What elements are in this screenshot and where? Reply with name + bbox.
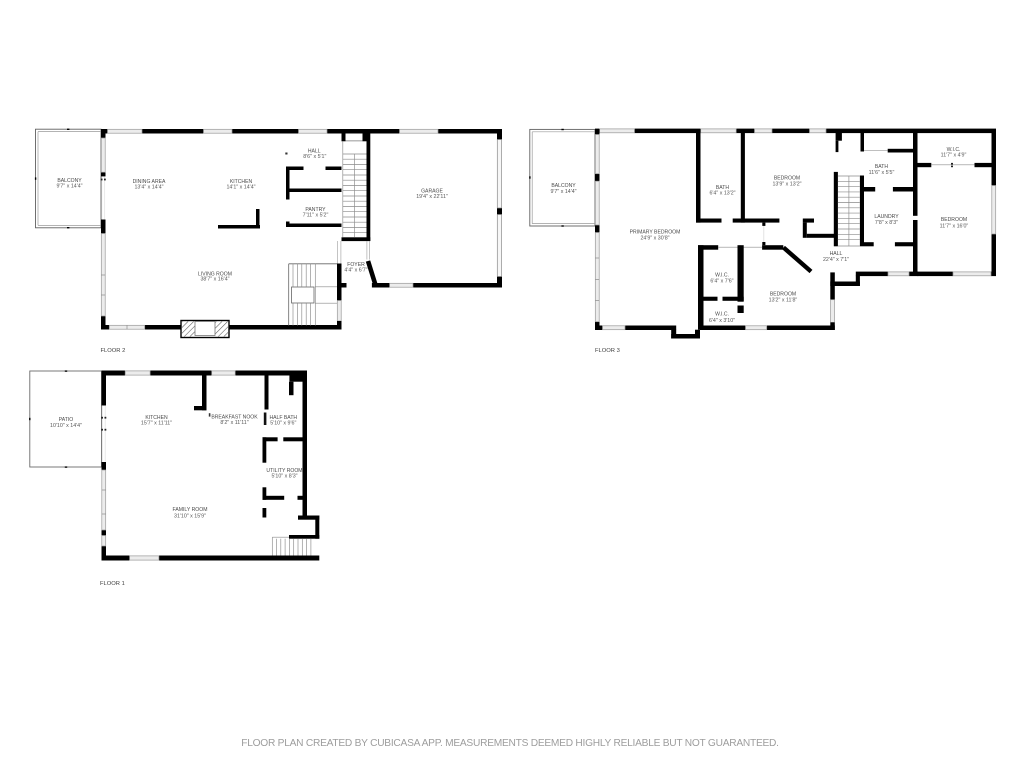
svg-text:5'10" x 8'3": 5'10" x 8'3": [271, 474, 297, 480]
svg-text:10'10" x 14'4": 10'10" x 14'4": [50, 423, 82, 429]
svg-text:13'9" x 13'2": 13'9" x 13'2": [772, 181, 801, 187]
svg-text:6'4" x 3'10": 6'4" x 3'10": [709, 318, 735, 324]
svg-text:9'7" x 14'4": 9'7" x 14'4": [56, 183, 82, 189]
svg-text:24'9" x 30'8": 24'9" x 30'8": [640, 236, 669, 242]
svg-text:5'10" x 9'6": 5'10" x 9'6": [270, 420, 296, 426]
svg-text:FAMILY ROOM: FAMILY ROOM: [173, 507, 208, 513]
svg-text:19'4" x 22'11": 19'4" x 22'11": [416, 194, 448, 200]
svg-text:14'1" x 14'4": 14'1" x 14'4": [226, 185, 255, 191]
svg-text:13'2" x 11'8": 13'2" x 11'8": [769, 298, 798, 304]
svg-text:8'2" x 11'11": 8'2" x 11'11": [220, 420, 248, 426]
svg-text:15'7" x 11'11": 15'7" x 11'11": [141, 420, 172, 426]
svg-text:FLOOR 2: FLOOR 2: [101, 348, 126, 354]
svg-text:PRIMARY BEDROOM: PRIMARY BEDROOM: [630, 229, 681, 235]
svg-text:W.I.C.: W.I.C.: [715, 312, 729, 318]
svg-text:6'4" x 13'2": 6'4" x 13'2": [709, 191, 735, 197]
svg-text:7'8" x 8'3": 7'8" x 8'3": [875, 220, 898, 226]
svg-text:8'6" x 5'1": 8'6" x 5'1": [303, 154, 326, 160]
svg-text:11'7" x 4'9": 11'7" x 4'9": [941, 153, 967, 159]
svg-text:11'7" x 16'0": 11'7" x 16'0": [940, 223, 969, 229]
svg-text:4'4" x 6'7": 4'4" x 6'7": [344, 268, 367, 274]
svg-text:FLOOR PLAN CREATED BY CUBICASA: FLOOR PLAN CREATED BY CUBICASA APP. MEAS…: [241, 738, 779, 749]
svg-text:22'4" x 7'1": 22'4" x 7'1": [823, 257, 849, 263]
svg-text:11'6" x 5'5": 11'6" x 5'5": [869, 170, 895, 176]
svg-text:7'11" x 5'2": 7'11" x 5'2": [303, 212, 329, 218]
svg-text:FLOOR 1: FLOOR 1: [100, 581, 125, 587]
svg-text:FLOOR 3: FLOOR 3: [595, 348, 620, 354]
svg-text:6'4" x 7'6": 6'4" x 7'6": [710, 279, 733, 285]
svg-text:38'7" x 16'4": 38'7" x 16'4": [200, 277, 229, 283]
svg-text:31'10" x 15'9": 31'10" x 15'9": [174, 513, 206, 519]
svg-text:BEDROOM: BEDROOM: [941, 217, 967, 223]
svg-text:9'7" x 14'4": 9'7" x 14'4": [550, 189, 576, 195]
svg-text:13'4" x 14'4": 13'4" x 14'4": [134, 185, 163, 191]
